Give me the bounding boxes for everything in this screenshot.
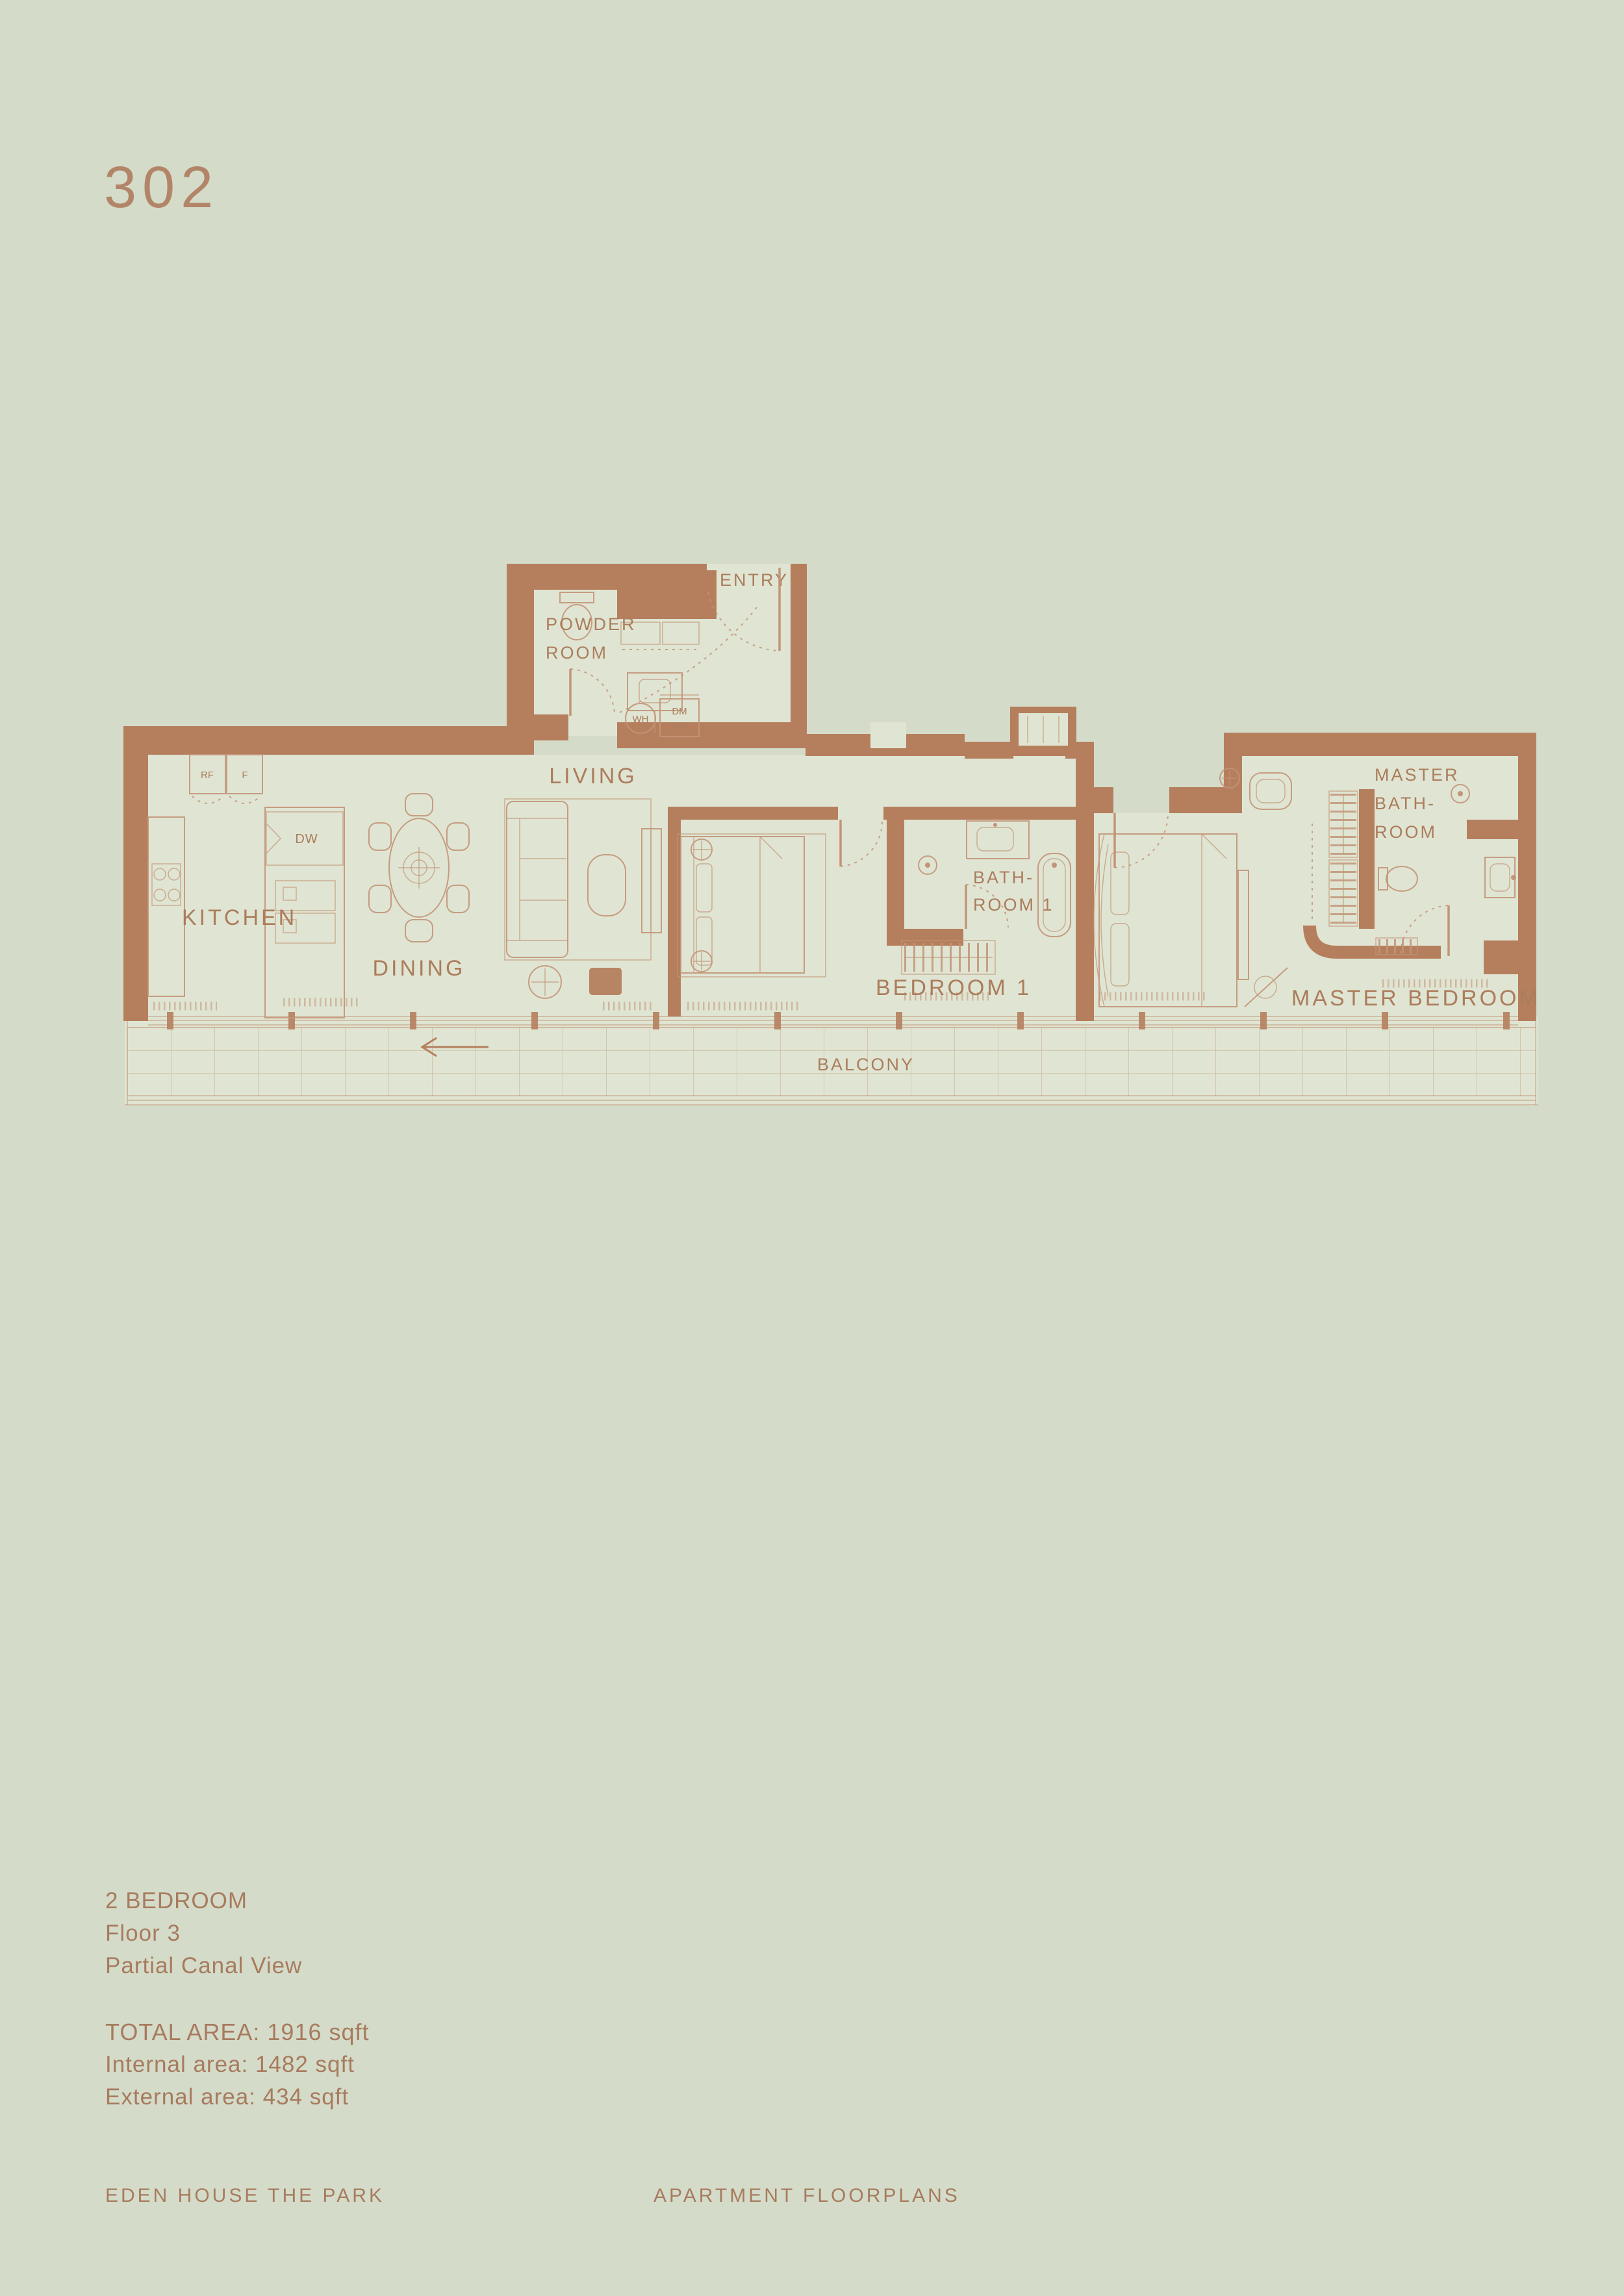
entry-label: ENTRY — [720, 570, 789, 590]
view-description: Partial Canal View — [105, 1950, 370, 1982]
ottoman — [589, 968, 622, 995]
master-bedroom-label: MASTER BEDROOM — [1291, 986, 1540, 1011]
section-name: APARTMENT FLOORPLANS — [653, 2185, 960, 2207]
bedroom-count: 2 BEDROOM — [105, 1885, 370, 1917]
bedroom1-label: BEDROOM 1 — [876, 976, 1032, 1000]
f-label: F — [242, 770, 247, 781]
living-label: LIVING — [549, 764, 637, 788]
external-area: External area: 434 sqft — [105, 2081, 370, 2113]
balcony-label: BALCONY — [817, 1055, 915, 1074]
master-bath-label-3: ROOM — [1375, 822, 1437, 842]
floorplan-drawing: BALCONY — [120, 557, 1543, 1111]
internal-area: Internal area: 1482 sqft — [105, 2049, 370, 2081]
total-area: TOTAL AREA: 1916 sqft — [105, 2016, 370, 2049]
floorplan-page: 302 — [0, 0, 1624, 2296]
bathroom1-label-2: ROOM 1 — [973, 895, 1054, 915]
master-bath-label-1: MASTER — [1375, 765, 1460, 785]
floorplan-svg: BALCONY — [120, 557, 1543, 1111]
wm-label: WM — [671, 720, 689, 731]
powder-room-label-1: POWDER — [546, 614, 637, 634]
unit-number: 302 — [104, 155, 219, 221]
floor-areas — [125, 564, 1538, 1105]
wh-label: WH — [633, 714, 649, 725]
rf-label: RF — [201, 770, 214, 781]
project-name: EDEN HOUSE THE PARK — [105, 2185, 385, 2207]
dw-label: DW — [295, 832, 318, 846]
bathroom1-label-1: BATH- — [973, 868, 1034, 887]
dm-label: DM — [672, 706, 687, 717]
kitchen-label: KITCHEN — [182, 905, 297, 930]
dining-label: DINING — [373, 956, 466, 981]
master-bath-label-2: BATH- — [1375, 794, 1436, 813]
powder-room-label-2: ROOM — [546, 643, 608, 662]
floor-number: Floor 3 — [105, 1917, 370, 1950]
unit-details: 2 BEDROOM Floor 3 Partial Canal View TOT… — [105, 1885, 370, 2113]
